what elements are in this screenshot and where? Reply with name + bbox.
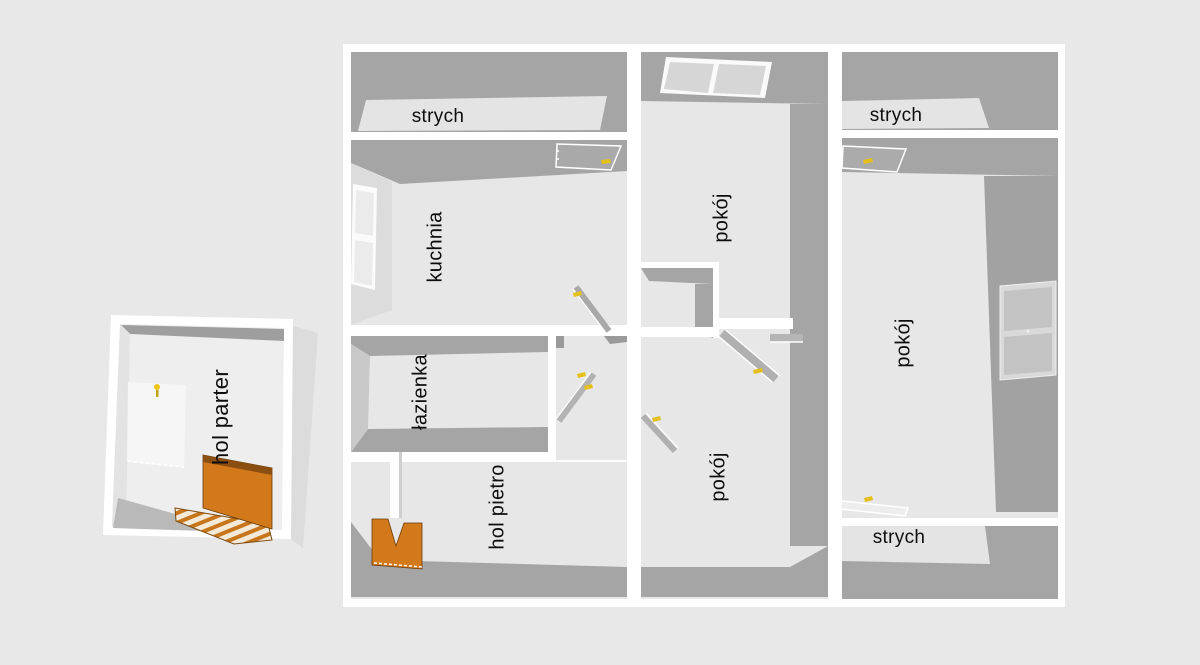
room-label-kuchnia: kuchnia (425, 211, 448, 282)
room-label-strych-bottom-right: strych (873, 527, 925, 549)
corridor-floor (556, 336, 627, 460)
floorplan-drawing (0, 0, 1200, 665)
main-building (343, 44, 1065, 607)
room-label-hol-parter: hol parter (208, 369, 234, 465)
lazienka-south-wall-face (351, 427, 548, 452)
stair-stub-wall (390, 452, 400, 518)
kuchnia-window (351, 184, 377, 290)
open-door-icon (556, 144, 621, 170)
pokoj-east-wall-face (790, 104, 828, 546)
open-door-icon (842, 146, 906, 172)
floorplan-canvas: strych kuchnia łazienka hol pietro pokój… (0, 0, 1200, 665)
room-label-strych-top-left: strych (412, 106, 464, 128)
room-label-pokoj-top-middle: pokój (711, 193, 734, 242)
door-lintel (770, 334, 803, 342)
room-label-pokoj-right: pokój (893, 318, 916, 367)
pokoj-right-window (1000, 281, 1056, 380)
room-label-lazienka: łazienka (410, 354, 433, 430)
skylight-window (660, 57, 772, 98)
room-label-strych-top-right: strych (870, 105, 922, 127)
wall-left-middle (627, 44, 641, 607)
room-label-pokoj-bottom-middle: pokój (708, 452, 731, 501)
door-jamb (556, 336, 564, 348)
attic-floor-strip (358, 96, 607, 131)
room-label-hol-pietro: hol pietro (487, 464, 510, 549)
